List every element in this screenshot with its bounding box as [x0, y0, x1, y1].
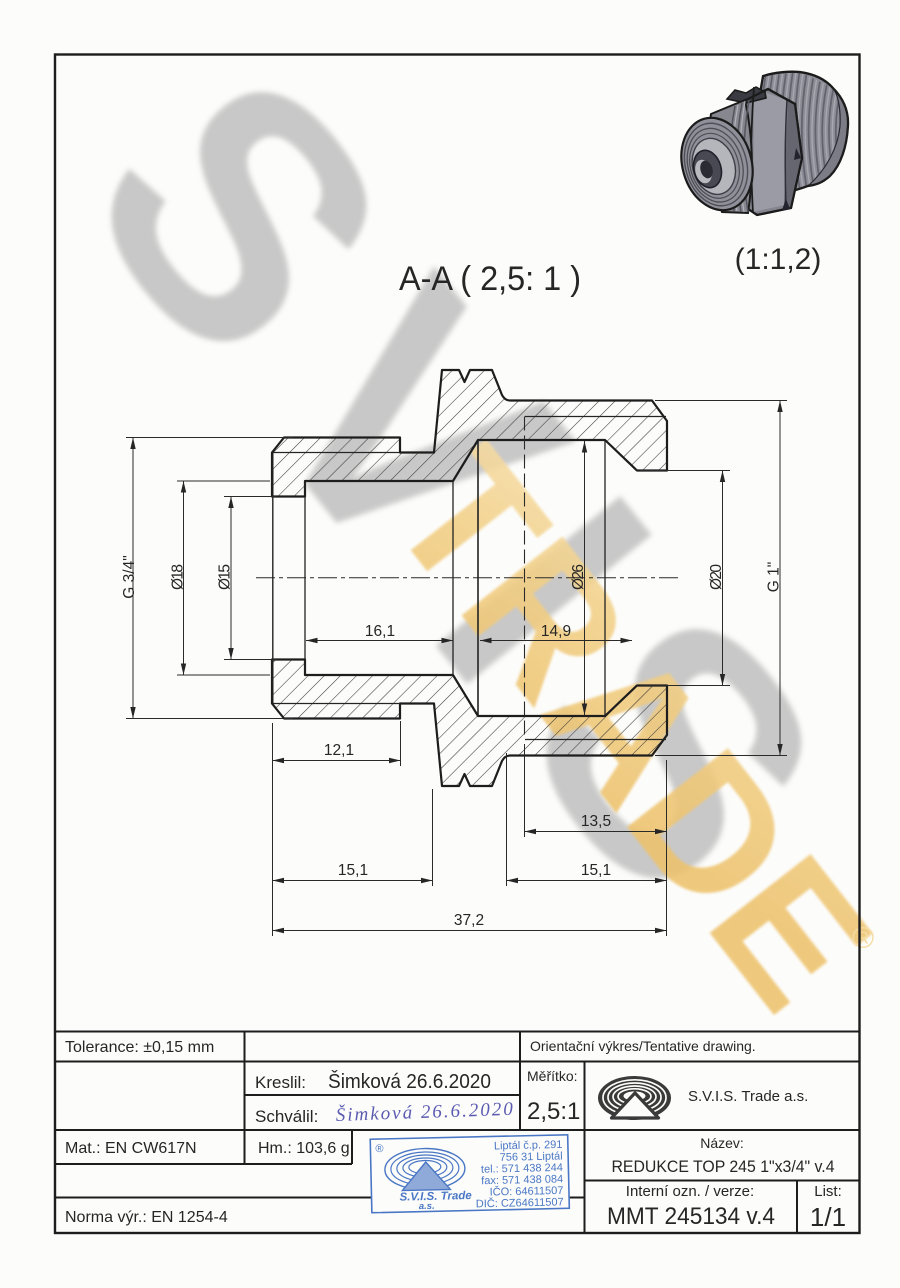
- svg-text:Šimková 26.6.2020: Šimková 26.6.2020: [335, 1098, 515, 1126]
- svg-text:Ø15: Ø15: [217, 564, 234, 590]
- svg-text:Hm.: 103,6 g: Hm.: 103,6 g: [258, 1140, 350, 1157]
- svg-text:G 3/4": G 3/4": [121, 555, 138, 598]
- svg-text:MMT 245134 v.4: MMT 245134 v.4: [607, 1203, 775, 1230]
- svg-text:12,1: 12,1: [324, 742, 354, 759]
- svg-text:37,2: 37,2: [454, 912, 484, 929]
- svg-text:(1:1,2): (1:1,2): [735, 243, 822, 276]
- svg-text:15,1: 15,1: [338, 862, 368, 879]
- svg-text:S.V.I.S. Trade a.s.: S.V.I.S. Trade a.s.: [688, 1088, 808, 1105]
- svg-text:14,9: 14,9: [541, 623, 571, 640]
- svg-text:Schválil:: Schválil:: [255, 1107, 318, 1126]
- svg-text:S.V.I.S. Trade: S.V.I.S. Trade: [399, 1190, 472, 1204]
- svg-text:a.s.: a.s.: [419, 1201, 435, 1212]
- svg-text:List:: List:: [814, 1183, 842, 1200]
- svg-text:16,1: 16,1: [365, 623, 395, 640]
- svg-text:1/1: 1/1: [810, 1202, 846, 1232]
- svg-text:Měřítko:: Měřítko:: [527, 1068, 578, 1084]
- svg-text:DIČ: CZ64611507: DIČ: CZ64611507: [476, 1195, 564, 1210]
- svg-text:®: ®: [852, 922, 874, 955]
- svg-text:Tolerance: ±0,15 mm: Tolerance: ±0,15 mm: [65, 1039, 214, 1056]
- svg-text:Ø26: Ø26: [570, 564, 587, 590]
- svg-text:Název:: Název:: [700, 1135, 744, 1151]
- svg-text:A-A ( 2,5: 1 ): A-A ( 2,5: 1 ): [399, 260, 581, 298]
- svg-text:®: ®: [375, 1143, 383, 1155]
- svg-text:REDUKCE TOP 245 1"x3/4" v.4: REDUKCE TOP 245 1"x3/4" v.4: [612, 1158, 835, 1176]
- svg-text:Mat.: EN CW617N: Mat.: EN CW617N: [65, 1140, 197, 1157]
- svg-text:Norma výr.: EN 1254-4: Norma výr.: EN 1254-4: [65, 1209, 228, 1226]
- svg-text:Interní ozn. / verze:: Interní ozn. / verze:: [626, 1183, 754, 1200]
- svg-text:Orientační výkres/Tentative dr: Orientační výkres/Tentative drawing.: [530, 1038, 756, 1054]
- svg-text:13,5: 13,5: [581, 813, 611, 830]
- svg-text:Šimková 26.6.2020: Šimková 26.6.2020: [328, 1070, 491, 1093]
- svg-text:2,5:1: 2,5:1: [527, 1098, 580, 1125]
- svg-text:Kreslil:: Kreslil:: [255, 1073, 306, 1092]
- svg-text:Ø20: Ø20: [708, 564, 725, 590]
- svg-text:Ø18: Ø18: [170, 564, 187, 590]
- svg-text:15,1: 15,1: [581, 862, 611, 879]
- svg-text:G 1": G 1": [766, 562, 783, 593]
